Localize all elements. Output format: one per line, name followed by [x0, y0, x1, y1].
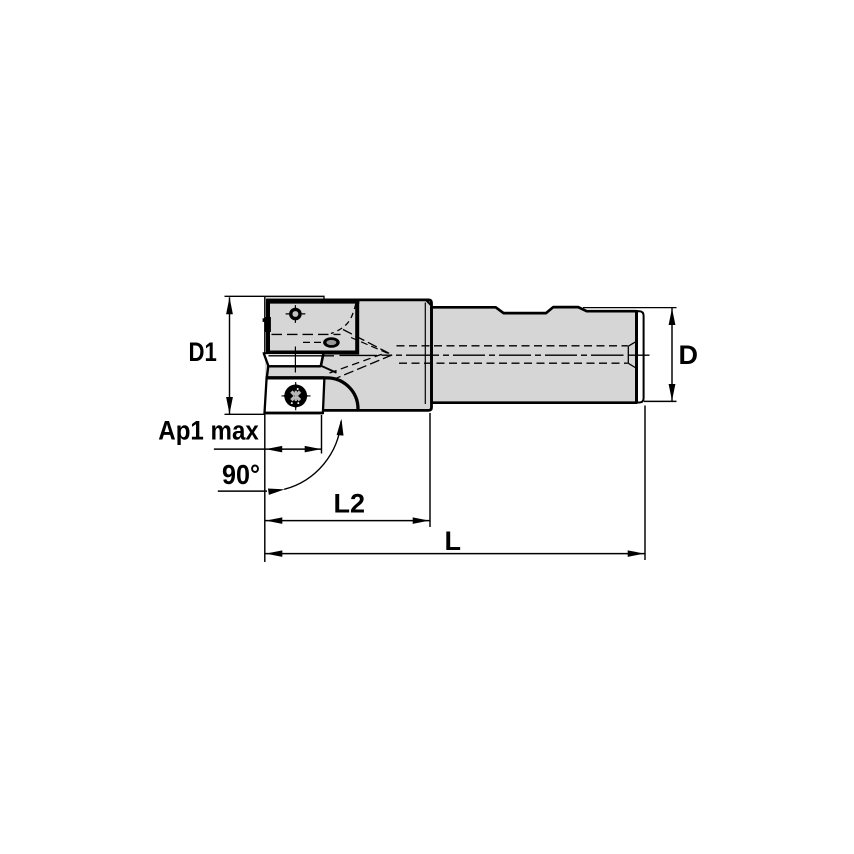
svg-text:L2: L2 [334, 488, 366, 518]
svg-text:L: L [445, 526, 462, 556]
svg-text:D1: D1 [189, 337, 217, 367]
svg-text:D: D [679, 340, 699, 370]
svg-text:90°: 90° [222, 459, 260, 490]
svg-text:Ap1 max: Ap1 max [158, 415, 258, 445]
